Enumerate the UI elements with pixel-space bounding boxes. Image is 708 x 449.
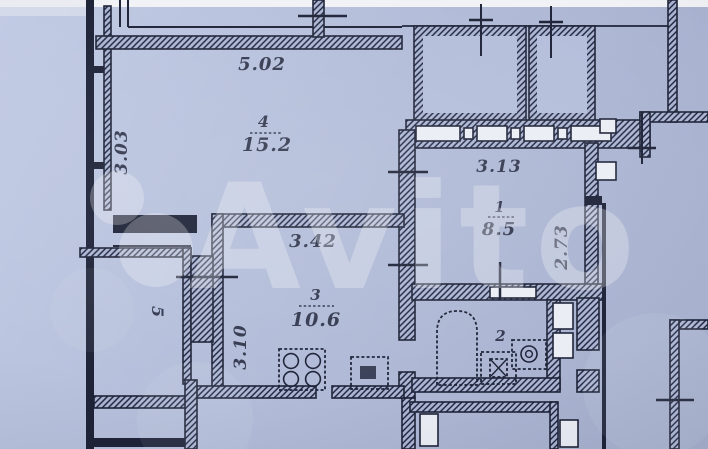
window [477, 126, 507, 141]
duct-shaft [553, 333, 573, 358]
shaft-box-interior [423, 36, 517, 113]
stove-burner [284, 372, 299, 387]
watermark-logo-dot [119, 213, 193, 287]
wall [86, 0, 94, 449]
room-number: 5 [148, 306, 167, 318]
window-pier [464, 128, 473, 139]
watermark-text: Avito [188, 153, 641, 323]
duct-shaft [420, 414, 438, 446]
duct-shaft [560, 420, 578, 447]
wall [332, 386, 404, 398]
watermark: Avito [50, 153, 708, 449]
dim-label: 3.03 [112, 129, 132, 174]
window-pier [558, 128, 567, 139]
window [416, 126, 460, 141]
photo-corner-glare [0, 0, 90, 16]
floor-plan-photo: 5.02 4 15.2 3.03 3.13 1 8.5 2.73 3.42 3 … [0, 0, 708, 449]
stove-burner [306, 354, 321, 369]
door-opening [600, 119, 616, 133]
window-pier [511, 128, 520, 139]
floor-plan-drawing: 5.02 4 15.2 3.03 3.13 1 8.5 2.73 3.42 3 … [0, 0, 708, 449]
dim-label: 3.10 [231, 324, 251, 369]
wall [94, 66, 104, 73]
watermark-logo-dot [50, 268, 134, 352]
stove-burner [284, 354, 299, 369]
room-number: 4 [258, 112, 270, 131]
wall [668, 0, 677, 122]
wall [96, 36, 402, 49]
washing-machine-symbol [521, 346, 537, 362]
room-number: 2 [494, 327, 506, 345]
dim-label: 5.02 [238, 54, 286, 75]
shaft-box-interior [537, 36, 587, 113]
washing-machine-symbol [526, 351, 533, 358]
washing-machine-symbol [512, 340, 546, 369]
wall [412, 378, 560, 392]
wall [94, 162, 104, 169]
wall [410, 402, 557, 412]
toilet-symbol [491, 360, 506, 376]
wall [313, 0, 324, 37]
sink-symbol [360, 366, 376, 379]
wall [550, 402, 558, 449]
stove-burner [306, 372, 321, 387]
watermark-logo-dot [90, 171, 144, 225]
window [524, 126, 554, 141]
watermark-logo-dot [583, 313, 708, 449]
watermark-logo-dot [137, 362, 253, 449]
